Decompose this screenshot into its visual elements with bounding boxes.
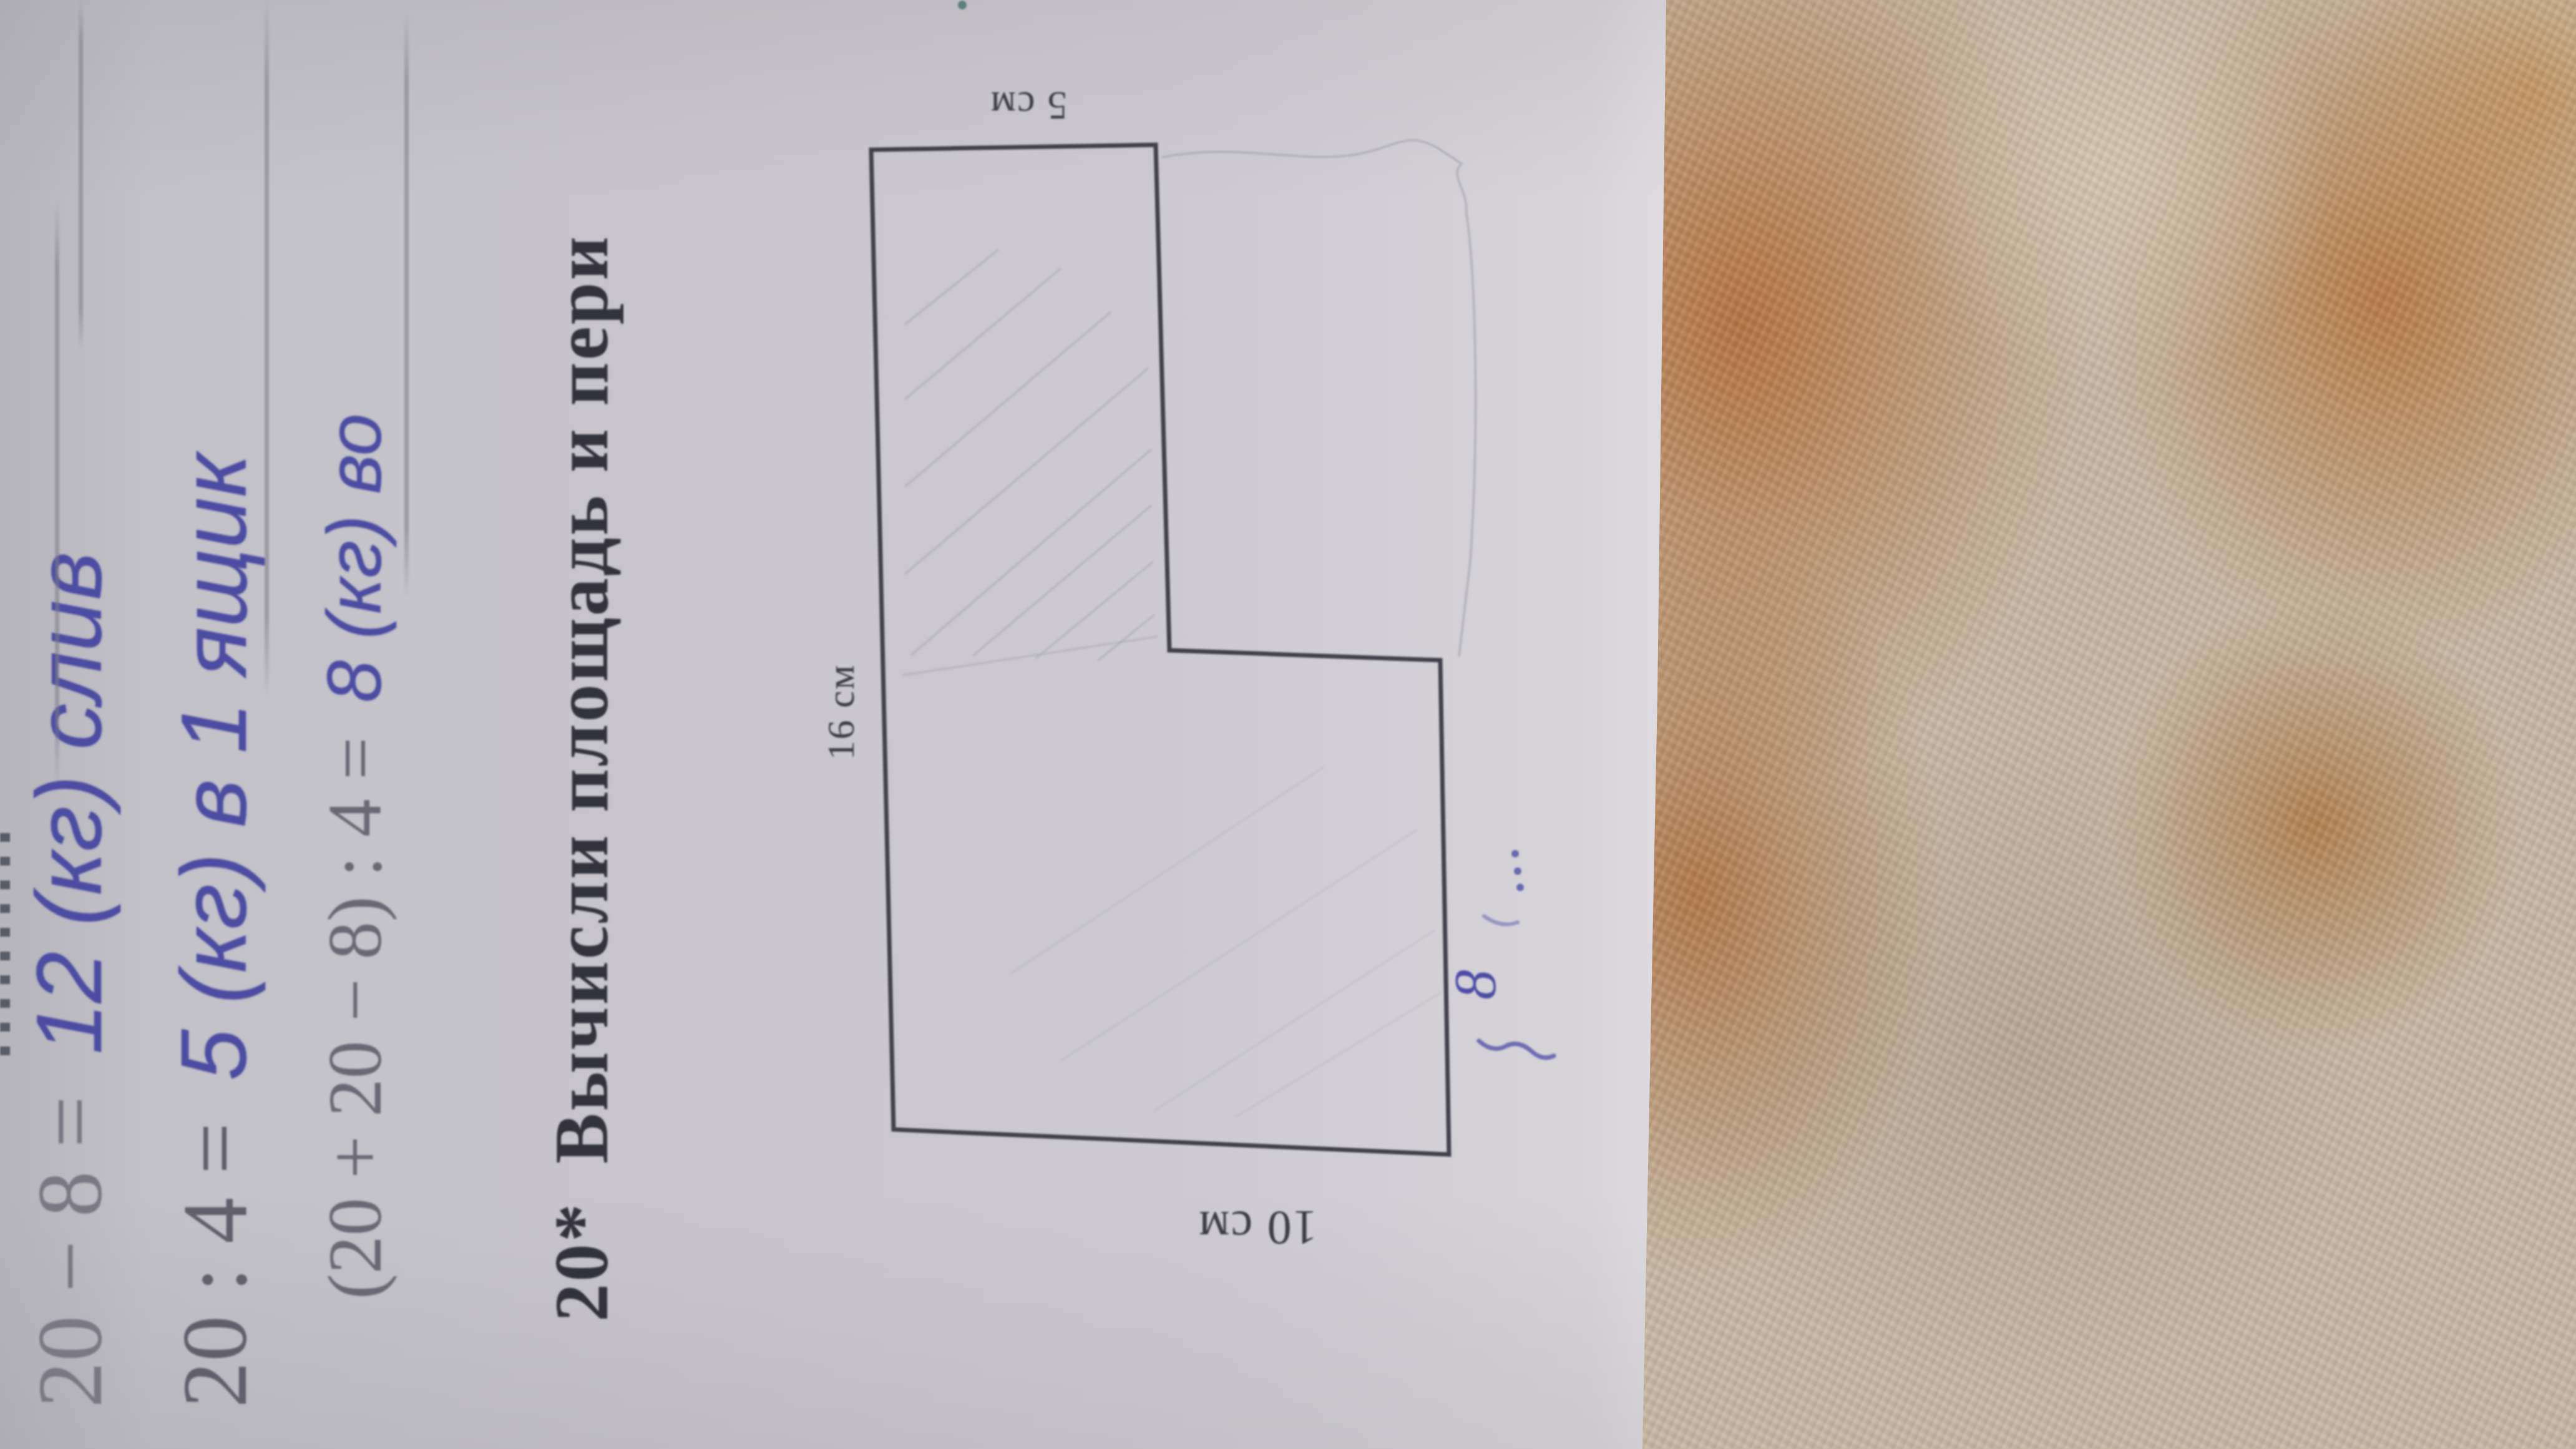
- page-content: 20 − 8 =12 (кг) слив 20 : 4 =5 (кг) в 1 …: [0, 0, 2576, 1449]
- figure-outline: [871, 145, 1449, 1154]
- stray-ink-speck: [958, 1, 967, 9]
- pencil-hatching-lower: [1011, 768, 1442, 1117]
- ink-annotation-8: 8: [1442, 850, 1554, 1058]
- pencil-hatching-upper: [905, 250, 1154, 660]
- annotation-value-8: 8: [1442, 970, 1508, 1000]
- dimension-label-16cm: 16 см: [819, 664, 862, 760]
- dimension-label-5cm: 5 см: [990, 84, 1068, 128]
- pencil-sketch-line: [1162, 140, 1476, 656]
- photo-of-workbook-page: 20 − 8 =12 (кг) слив 20 : 4 =5 (кг) в 1 …: [0, 0, 2576, 1449]
- dimension-label-10cm: 10 см: [1198, 1201, 1317, 1256]
- figure-diagram: 5 см 16 см 10 см 8: [0, 0, 2576, 1449]
- pencil-sketch-line-2: [902, 637, 1158, 675]
